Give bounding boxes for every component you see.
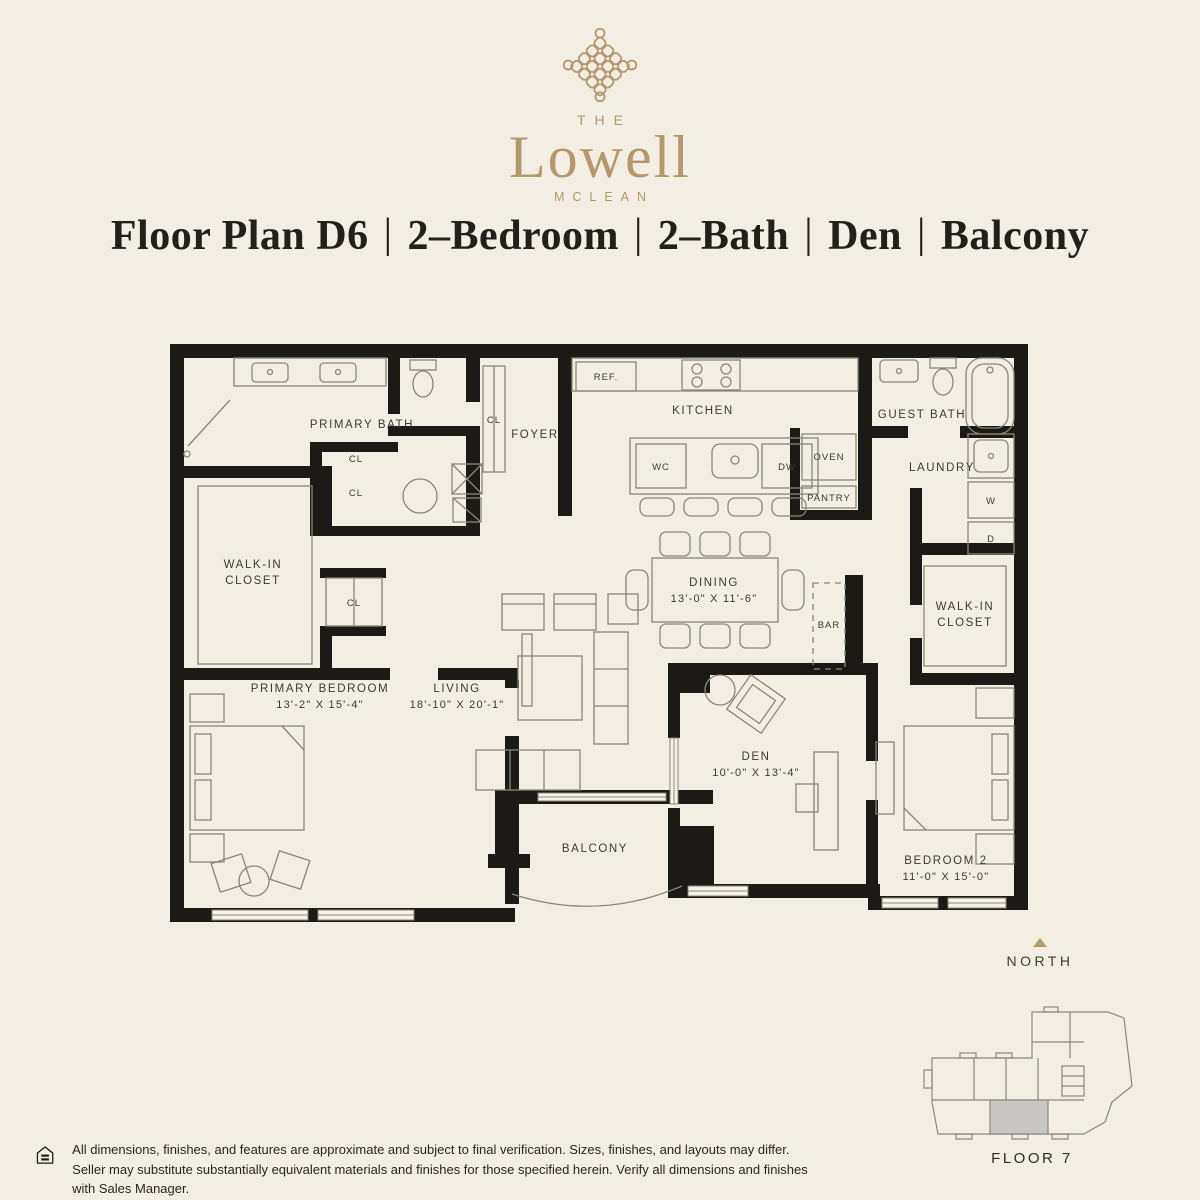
- room-label-primary-bedroom: PRIMARY BEDROOM: [251, 683, 390, 695]
- north-label: NORTH: [960, 953, 1120, 969]
- title-separator: |: [804, 211, 813, 257]
- brand-name: Lowell: [0, 128, 1200, 186]
- dim-label-bedroom-2: 11'-0" X 15'-0": [903, 871, 990, 883]
- title-separator: |: [384, 211, 393, 257]
- disclaimer-text: All dimensions, finishes, and features a…: [72, 1136, 826, 1199]
- room-label-walk-in-closet-right: WALK-IN: [936, 601, 995, 613]
- room-label-balcony: BALCONY: [562, 843, 628, 855]
- title-separator: |: [917, 211, 926, 257]
- room-label-walk-in-closet-left: CLOSET: [225, 575, 281, 587]
- windows: [212, 738, 1006, 920]
- brand-logo: THE Lowell MCLEAN: [0, 28, 1200, 204]
- equal-housing-icon: [36, 1136, 54, 1174]
- room-label-bar: BAR: [818, 620, 841, 631]
- room-label-bedroom-2: BEDROOM 2: [904, 855, 987, 867]
- celtic-knot-icon: [563, 28, 637, 102]
- keyplan-floor-label: FLOOR 7: [912, 1150, 1152, 1167]
- closet-label: CL: [349, 454, 363, 465]
- room-label-laundry: LAUNDRY: [909, 462, 975, 474]
- title-part: 2–Bath: [658, 213, 789, 259]
- title-separator: |: [634, 211, 643, 257]
- page-title: Floor Plan D6|2–Bedroom|2–Bath|Den|Balco…: [0, 212, 1200, 260]
- fixture-label-oven: OVEN: [814, 452, 845, 463]
- fixture-label-pantry: PANTRY: [807, 493, 851, 504]
- north-indicator: NORTH: [960, 938, 1120, 969]
- dim-label-den: 10'-0" X 13'-4": [712, 767, 800, 779]
- brand-sub: MCLEAN: [8, 190, 1200, 204]
- fixture-label-washer: W: [986, 496, 996, 507]
- closet-label: CL: [487, 415, 501, 426]
- room-label-walk-in-closet-left: WALK-IN: [224, 559, 283, 571]
- closet-label: CL: [347, 598, 361, 609]
- room-label-foyer: FOYER: [511, 429, 559, 441]
- room-label-guest-bath: GUEST BATH: [878, 409, 966, 421]
- keyplan: [912, 982, 1152, 1147]
- title-part: 2–Bedroom: [408, 213, 619, 259]
- fixture-label-dishwasher: DW: [778, 462, 796, 473]
- furniture: [184, 358, 1014, 906]
- floor-plan: PRIMARY BATH FOYER KITCHEN GUEST BATH LA…: [170, 338, 1030, 938]
- walls: [170, 344, 1028, 922]
- title-part: Floor Plan D6: [111, 213, 369, 259]
- fixture-label-dryer: D: [987, 534, 995, 545]
- room-label-walk-in-closet-right: CLOSET: [937, 617, 993, 629]
- room-labels: PRIMARY BATH FOYER KITCHEN GUEST BATH LA…: [224, 405, 995, 883]
- fixture-label-wine-cooler: WC: [652, 462, 670, 473]
- room-label-kitchen: KITCHEN: [672, 405, 734, 417]
- floor-plan-page: THE Lowell MCLEAN Floor Plan D6|2–Bedroo…: [0, 0, 1200, 1200]
- fixture-label-ref: REF.: [594, 372, 619, 383]
- dim-label-living: 18'-10" X 20'-1": [410, 699, 505, 711]
- disclaimer: All dimensions, finishes, and features a…: [36, 1136, 826, 1199]
- title-part: Balcony: [941, 213, 1089, 259]
- dim-label-dining: 13'-0" X 11'-6": [671, 593, 758, 605]
- room-label-living: LIVING: [433, 683, 480, 695]
- dim-label-primary-bedroom: 13'-2" X 15'-4": [276, 699, 364, 711]
- room-label-primary-bath: PRIMARY BATH: [310, 419, 414, 431]
- title-part: Den: [828, 213, 902, 259]
- room-label-den: DEN: [741, 751, 770, 763]
- room-label-dining: DINING: [689, 577, 739, 589]
- north-arrow-icon: [1033, 938, 1047, 947]
- closet-label: CL: [349, 488, 363, 499]
